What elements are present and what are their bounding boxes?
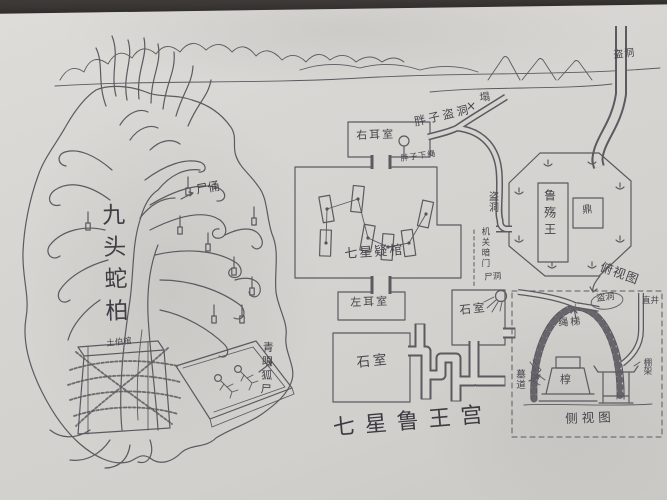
label-tomb-passage: 墓道: [514, 369, 524, 390]
label-scaffold: 棚架: [642, 358, 651, 375]
mountain-sketch: [55, 43, 660, 92]
label-stone-room-b: 石室: [459, 301, 487, 316]
chained-coffin-drawing: [68, 341, 180, 434]
label-tree-name: 九头蛇柏: [98, 202, 127, 331]
top-right-tunnel: [598, 26, 622, 167]
photo-of-hand-drawn-map: 七星鲁王宫 九头蛇柏 尸俑 土伯棺 青眼狐尸 右耳室 胖子盗洞 胖子下绳 × 塌…: [0, 0, 667, 500]
label-tunnel-mid: 盗洞: [486, 191, 497, 213]
corpse-slab-drawing: [176, 341, 294, 427]
label-side-view: 侧视图: [565, 410, 615, 425]
label-hidden-door: 机关暗门: [480, 227, 489, 269]
cavern-outline: [23, 86, 293, 463]
octagon-lamps: [515, 158, 624, 268]
label-king-coffin: 鲁殇王: [543, 189, 556, 240]
hidden-door-and-corpse-hole: [474, 230, 507, 312]
label-right-ear-room: 右耳室: [356, 129, 395, 142]
label-outer-coffin: 椁: [560, 374, 571, 386]
label-corpse-hole: 尸洞: [484, 273, 502, 283]
label-collapse-mark: ×: [466, 100, 476, 113]
top-view-arrow: [590, 276, 600, 292]
label-side-view-shaft: 直井: [642, 297, 659, 306]
label-collapsed: 塌: [479, 92, 491, 104]
label-rope-ladder: 绳梯: [558, 317, 583, 329]
label-side-view-tunnel: 盗洞: [596, 293, 615, 304]
label-left-ear-room: 左耳室: [350, 296, 389, 309]
label-stone-room-a: 石室: [356, 353, 390, 371]
label-vessel: 鼎: [582, 205, 593, 216]
label-fox-corpse: 青眼狐尸: [259, 341, 273, 398]
